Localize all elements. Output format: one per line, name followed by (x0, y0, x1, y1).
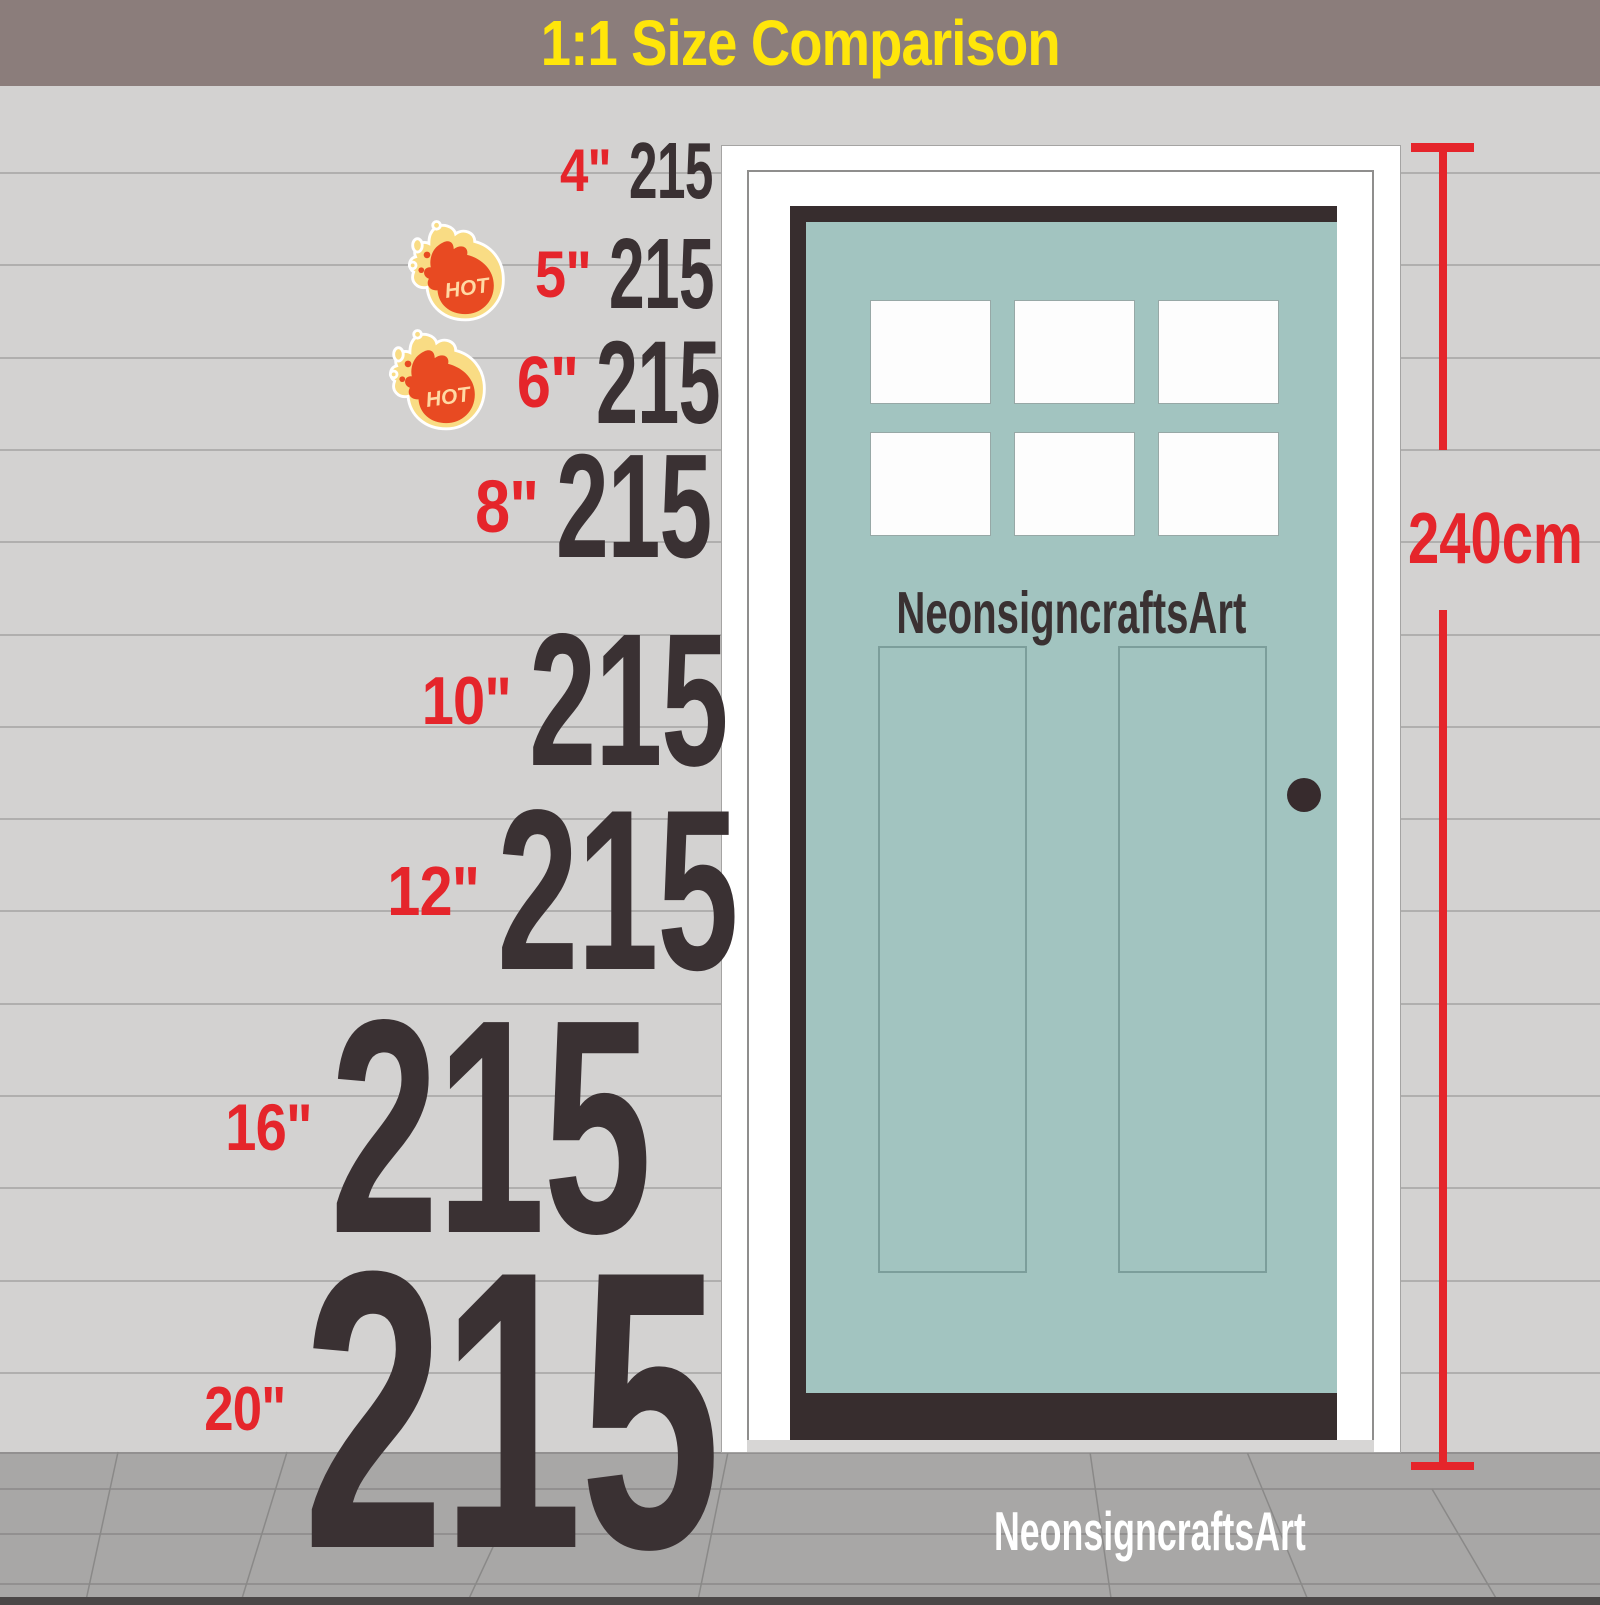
size-row-4in: 4" 215 (551, 131, 714, 211)
measure-bottom-cap (1411, 1462, 1474, 1470)
door-window-pane (1158, 432, 1279, 536)
size-row-5in: HOT 5" 215 (406, 220, 716, 328)
door-slab: NeonsigncraftsArt (806, 222, 1337, 1393)
door-height-label: 240cm (1408, 503, 1583, 575)
size-comparison-infographic: 1:1 Size Comparison NeonsigncraftsArt 24… (0, 0, 1600, 1605)
door-brand-text: NeonsigncraftsArt (896, 584, 1246, 643)
size-label: 12" (387, 856, 479, 926)
house-number-sample: 215 (303, 1212, 718, 1605)
size-label: 8" (475, 470, 538, 544)
hot-flame-icon: HOT (406, 220, 511, 328)
house-number-sample: 215 (629, 131, 713, 211)
brand-watermark-wrap: NeonsigncraftsArt (900, 1504, 1400, 1559)
hot-flame-icon: HOT (387, 329, 492, 437)
door-window-pane (1014, 432, 1135, 536)
page-title: 1:1 Size Comparison (541, 11, 1060, 75)
size-label: 4" (560, 141, 611, 201)
door-kick-plate (790, 1393, 1337, 1440)
door-panel-left (878, 646, 1027, 1273)
measure-upper-segment (1439, 143, 1447, 450)
house-number-sample: 215 (556, 433, 711, 581)
house-number-sample: 215 (609, 224, 714, 324)
size-label: 16" (226, 1094, 312, 1160)
size-row-20in: 20" 215 (190, 1212, 726, 1605)
size-label: 20" (204, 1379, 285, 1441)
door-frame: NeonsigncraftsArt (722, 146, 1400, 1452)
door-dark-frame-left (790, 206, 806, 1440)
size-label: 5" (535, 241, 591, 307)
door-dark-frame-top (790, 206, 1337, 222)
door-window-pane (1014, 300, 1135, 404)
size-label: 10" (422, 667, 511, 735)
size-row-8in: 8" 215 (464, 433, 714, 581)
door-window-pane (870, 432, 991, 536)
brand-watermark: NeonsigncraftsArt (994, 1504, 1306, 1559)
door-panel-right (1118, 646, 1267, 1273)
door-threshold (747, 1440, 1374, 1452)
door-window-pane (1158, 300, 1279, 404)
door-knob (1287, 778, 1321, 812)
door-window-pane (870, 300, 991, 404)
door-brand-text-wrap: NeonsigncraftsArt (806, 584, 1337, 643)
size-label: 6" (517, 347, 578, 419)
door-height-label-wrap: 240cm (1408, 503, 1600, 575)
measure-lower-segment (1439, 610, 1447, 1470)
header-bar: 1:1 Size Comparison (0, 0, 1600, 86)
